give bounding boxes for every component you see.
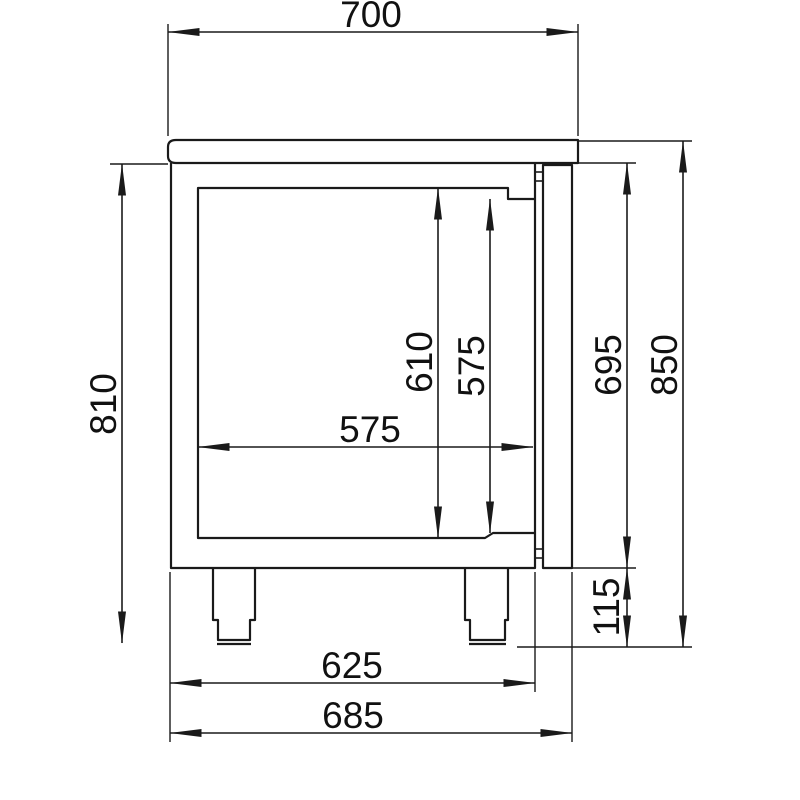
door-panel xyxy=(543,165,572,568)
dim-label-body-height-right: 695 xyxy=(588,334,629,396)
leg-right xyxy=(465,568,508,640)
worktop-outline xyxy=(168,140,578,163)
hinge-bottom xyxy=(535,549,543,558)
dim-label-depth-with-door: 685 xyxy=(322,695,384,736)
dim-label-door-opening-height: 575 xyxy=(451,335,492,397)
dim-label-body-depth: 625 xyxy=(321,645,383,686)
dim-label-worktop-width: 700 xyxy=(340,0,402,35)
dim-label-total-height: 850 xyxy=(644,334,685,396)
technical-drawing: 700 810 610 575 575 695 850 115 625 685 xyxy=(0,0,800,800)
dim-label-interior-depth: 575 xyxy=(339,409,401,450)
dim-label-interior-height: 610 xyxy=(399,331,440,393)
cabinet-geometry xyxy=(168,140,578,644)
dim-label-height-under-worktop: 810 xyxy=(83,373,124,435)
leg-left xyxy=(213,568,255,640)
hinge-top xyxy=(535,172,543,181)
dimension-labels: 700 810 610 575 575 695 850 115 625 685 xyxy=(83,0,685,736)
drawing-canvas: 700 810 610 575 575 695 850 115 625 685 xyxy=(0,0,800,800)
dim-label-leg-height: 115 xyxy=(586,578,627,637)
